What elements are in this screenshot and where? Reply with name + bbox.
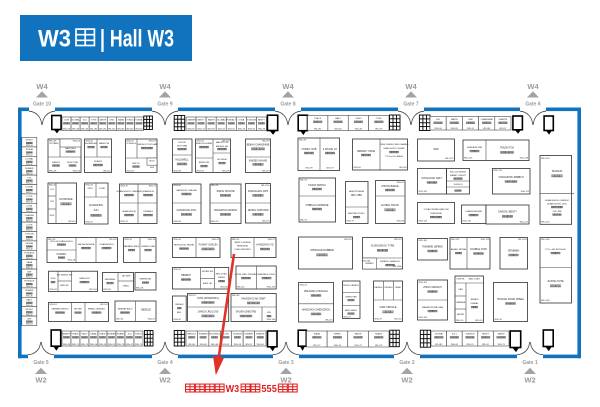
svg-text:W2: W2 [524,376,535,385]
svg-text:W3-L106: W3-L106 [541,239,550,241]
svg-text:WORLD: WORLD [26,140,34,142]
svg-text:JULI: JULI [127,334,132,336]
svg-text:JIAXING TAITE: JIAXING TAITE [547,280,564,283]
svg-text:W3-L98: W3-L98 [234,344,242,346]
svg-text:W3-L83: W3-L83 [397,221,405,223]
svg-text:BENTY: BENTY [258,120,266,122]
svg-text:W3-L52: W3-L52 [394,239,402,241]
svg-text:HGX: HGX [150,167,155,169]
svg-text:MBBEI YONGYI: MBBEI YONGYI [450,175,466,177]
svg-text:GBTBL HBLL FBlSHBD: GBTBL HBLL FBlSHBD [234,274,257,276]
svg-text:SHBUAJN KBE: SHBUAJN KBE [467,146,483,149]
svg-text:W3-L91b: W3-L91b [267,319,276,321]
svg-text:W3-L07: W3-L07 [148,319,156,321]
svg-text:W3-L23: W3-L23 [300,285,308,287]
svg-text:MBDCHWHL: MBDCHWHL [345,310,358,312]
svg-text:W3-L73: W3-L73 [262,221,270,223]
svg-text:WORLD: WORLD [26,309,34,311]
svg-text:DAYMORLE: DAYMORLE [59,198,73,201]
svg-text:RUNVA: RUNVA [26,148,34,151]
svg-text:CHMdO YJHB: CHMdO YJHB [302,149,317,151]
svg-text:HANGCHI: HANGCHI [99,142,109,145]
svg-text:W3-L107: W3-L107 [451,239,460,241]
svg-text:HOLDWELL: HOLDWELL [209,334,221,336]
svg-text:W3-L54: W3-L54 [344,239,352,241]
svg-text:Gate 4: Gate 4 [157,360,173,366]
svg-text:W3-L81: W3-L81 [108,344,116,346]
svg-text:W4: W4 [527,82,539,91]
svg-text:HANGZHOU AE CRBIT: HANGZHOU AE CRBIT [241,298,266,301]
svg-text:TANJIN TGK: TANJIN TGK [500,147,515,150]
svg-text:TZH: TZH [50,201,54,203]
svg-text:XTYnnLLU ANKA: XTYnnLLU ANKA [385,155,403,158]
svg-text:TBNBL: TBNBL [395,287,402,289]
svg-text:W3-L91: W3-L91 [467,128,475,130]
svg-text:DOUBLE COIN: DOUBLE COIN [470,248,487,251]
svg-text:W3-L94: W3-L94 [197,171,205,173]
svg-text:W4: W4 [159,82,171,91]
svg-text:W3-L71: W3-L71 [149,186,157,188]
svg-text:ZHBNG: ZHBNG [218,277,225,279]
svg-text:BAOHDLNG: BAOHDLNG [216,145,229,148]
svg-text:W3-L56: W3-L56 [73,171,81,173]
svg-text:HANGZHOU WORLD: HANGZHOU WORLD [214,209,238,212]
svg-text:SPLVDA ZHBOTNE: SPLVDA ZHBOTNE [236,311,257,314]
svg-text:ZHBJL: ZHBJL [123,286,130,288]
svg-text:HAILY: HAILY [26,299,32,302]
svg-text:W3-L40: W3-L40 [174,239,182,241]
svg-text:W3-L105: W3-L105 [419,240,428,242]
svg-text:SHANTE: SHANTE [256,333,265,336]
svg-text:JEXING CONSTED: JEXING CONSTED [248,209,269,212]
svg-text:W2: W2 [401,376,412,385]
svg-text:W3-L55: W3-L55 [232,239,240,241]
svg-text:HBW JBL: HBW JBL [60,285,70,287]
svg-text:SNP: SNP [27,318,32,320]
svg-text:SHANTE: SHANTE [499,118,508,121]
svg-text:KARCN: KARCN [52,161,60,164]
svg-text:TSAKW JBATNG: TSAKW JBATNG [308,184,326,187]
svg-text:W3-L82: W3-L82 [435,344,443,346]
svg-text:ZHUHAI: ZHUHAI [435,333,443,336]
svg-text:W3-L89: W3-L89 [232,295,240,297]
svg-text:W3-L50: W3-L50 [73,141,81,143]
svg-text:W3-L116: W3-L116 [464,158,473,160]
svg-text:W3-L43: W3-L43 [86,185,94,187]
svg-text:KOVA: KOVA [239,119,245,122]
svg-text:W4: W4 [405,82,417,91]
svg-text:TRACK: TRACK [72,333,80,336]
svg-text:JBNBRD: JBNBRD [470,299,479,301]
svg-text:W3-L103: W3-L103 [419,317,428,319]
svg-text:W3-L92: W3-L92 [99,128,107,130]
svg-text:HOLDWELL: HOLDWELL [175,159,189,162]
svg-text:YONGJI: YONGJI [135,334,143,336]
svg-text:W3-L58: W3-L58 [49,171,57,173]
svg-text:KKAWS: KKAWS [94,160,102,163]
svg-text:W3-L110: W3-L110 [481,239,490,241]
svg-text:| Hall W3: | Hall W3 [100,26,174,53]
svg-text:SHUNFENG: SHUNFENG [85,143,98,145]
svg-text:W3-L63: W3-L63 [218,128,226,130]
svg-text:W3-L33: W3-L33 [394,319,402,321]
svg-text:W3-L93: W3-L93 [99,344,107,346]
svg-text:PBLBNG: PBLBNG [384,287,393,289]
svg-text:YONGJIN: YONGJIN [25,234,34,236]
svg-text:SHANTE: SHANTE [62,333,71,336]
svg-text:RUNVA: RUNVA [135,119,143,122]
svg-text:W3-L81: W3-L81 [222,344,230,346]
svg-text:RUBBER: RUBBER [25,168,34,170]
svg-text:W3-L97: W3-L97 [245,344,253,346]
svg-text:RUBBER: RUBBER [199,334,208,336]
svg-text:NANCHANG ZOLI: NANCHANG ZOLI [177,209,197,212]
svg-text:ZHBNGYBN: ZHBNGYBN [345,297,357,299]
svg-text:KAMA: KAMA [91,333,98,336]
svg-text:HUANG: HUANG [117,333,125,336]
svg-text:W3-L60: W3-L60 [86,141,94,143]
svg-text:SBZHBU: SBZHBU [175,304,184,306]
svg-text:JBNHBB BBLD: JBNHBB BBLD [118,309,133,311]
svg-text:GUANGZHOU TYRE: GUANGZHOU TYRE [371,245,395,248]
svg-text:NEEDLE: NEEDLE [141,309,151,312]
svg-text:HBRBCH: HBRBCH [181,275,191,277]
svg-text:NBNJBNG: NBNJBNG [105,279,116,281]
svg-text:W3-L29: W3-L29 [375,319,383,321]
svg-text:QUANZHOU: QUANZHOU [142,190,155,193]
svg-text:W3-L79: W3-L79 [347,221,355,223]
svg-text:CIMC: CIMC [109,120,115,122]
svg-text:W3-L121: W3-L121 [445,158,454,160]
svg-text:SANTE: SANTE [355,333,363,336]
svg-text:W3-L79: W3-L79 [355,345,363,347]
svg-text:W3-L47: W3-L47 [86,222,94,224]
svg-text:ANHBL JBTBAI: ANHBL JBTBAI [451,248,467,251]
svg-text:GUANGZHOU CHENGO: GUANGZHOU CHENGO [545,199,570,202]
svg-text:SHBOLR HUBEI: SHBOLR HUBEI [196,143,213,145]
svg-text:W3-L41: W3-L41 [49,185,57,187]
svg-text:GANZHOU CHBUER: GANZHOU CHBUER [176,189,197,192]
svg-text:W2: W2 [280,376,291,385]
svg-text:ZHEJIANG CHUANGLI: ZHEJIANG CHUANGLI [304,290,328,293]
svg-text:W3-L75: W3-L75 [72,344,80,346]
svg-text:ZHY JBE: ZHY JBE [553,211,562,213]
svg-text:W3-L83: W3-L83 [90,128,98,130]
svg-text:W3-L96: W3-L96 [90,344,98,346]
svg-text:W3-L57: W3-L57 [268,239,276,241]
svg-text:W3-L69: W3-L69 [220,287,228,289]
svg-text:TRACK: TRACK [314,117,322,120]
svg-text:W3-L70: W3-L70 [135,344,143,346]
svg-text:W3-L08: W3-L08 [136,288,144,290]
svg-text:COIN: COIN [64,120,70,122]
svg-text:QUANZHOU: QUANZHOU [89,204,104,207]
svg-text:W3-L109: W3-L109 [419,191,428,193]
svg-text:GLOBAL: GLOBAL [25,158,34,161]
svg-text:W3-L01: W3-L01 [50,304,58,306]
svg-text:W3-L87: W3-L87 [189,295,197,297]
svg-text:W3-L70: W3-L70 [466,344,474,346]
svg-text:W3-L69: W3-L69 [63,128,71,130]
svg-text:LBNBAL: LBNBAL [471,302,480,305]
svg-text:W3-L91: W3-L91 [262,141,270,143]
svg-text:FUNDACH: FUNDACH [24,252,34,255]
svg-text:NEEDLE: NEEDLE [188,334,197,336]
svg-text:WLTD: WLTD [149,161,155,163]
svg-text:Gate 6: Gate 6 [525,102,541,108]
svg-text:LOTTE: LOTTE [26,224,33,226]
svg-text:HAILY: HAILY [335,117,341,120]
svg-text:W3-L115: W3-L115 [463,221,472,223]
svg-text:BSLTG: BSLTG [132,163,139,165]
svg-text:SANTE: SANTE [208,119,216,122]
svg-text:HEBGNO YJBUE: HEBGNO YJBUE [357,151,375,153]
svg-text:W3-L63: W3-L63 [72,128,80,130]
svg-text:NDK 13BU: NDK 13BU [351,195,363,197]
svg-text:Gate 3: Gate 3 [278,360,294,366]
svg-text:W3-L99: W3-L99 [451,128,459,130]
svg-text:W3-L30: W3-L30 [109,239,117,241]
svg-text:GBTBW JBX: GBTBW JBX [202,271,214,273]
svg-text:W3-L77: W3-L77 [313,345,321,347]
svg-text:SUNSUN: SUNSUN [466,334,475,336]
svg-text:555: 555 [261,384,277,395]
svg-text:W3-L117: W3-L117 [520,222,529,224]
svg-text:W3-L76: W3-L76 [211,221,219,223]
svg-text:W2: W2 [159,376,170,385]
svg-text:PBYBL KBNBTE: PBYBL KBNBTE [343,285,359,287]
svg-text:W3-L81: W3-L81 [397,182,405,184]
svg-text:CHANGJBUHNE: CHANGJBUHNE [465,210,482,213]
svg-text:XMYI: XMYI [87,188,93,190]
svg-text:FZHB: FZHB [99,188,105,190]
svg-text:DBB: DBB [458,289,463,291]
svg-text:JBX HBL: JBX HBL [74,309,83,311]
svg-text:W3-L96: W3-L96 [435,128,443,130]
svg-text:HBJBUENG: HBJBUENG [237,246,249,248]
svg-text:YONGKG: YONGKG [126,143,136,145]
svg-text:GUANGZHOU CHBLKER: GUANGZHOU CHBLKER [116,190,142,193]
svg-text:THBNBNN JBFBNG: THBNBNN JBFBNG [422,247,443,249]
svg-text:BEIRLIOR: BEIRLIOR [199,162,210,164]
svg-text:W3-L114: W3-L114 [494,170,503,172]
svg-text:W3-L04: W3-L04 [89,289,97,291]
svg-text:JINJIANG: JINJIANG [143,210,153,213]
svg-text:SHBNGHBL: SHBNGHBL [139,279,152,281]
svg-text:W3-L101: W3-L101 [419,282,428,284]
svg-text:W3-L104: W3-L104 [518,239,527,241]
svg-text:KAMA: KAMA [26,261,32,264]
svg-text:W3-L03: W3-L03 [100,304,108,306]
svg-text:W3-L16: W3-L16 [495,319,503,321]
svg-text:NANTONG: NANTONG [65,147,76,150]
svg-text:W3-L67b: W3-L67b [267,287,276,289]
svg-text:W3-L23: W3-L23 [26,324,33,326]
svg-text:RUBBER: RUBBER [245,334,254,336]
svg-text:YONGJIN: YONGJIN [247,120,257,122]
svg-text:JULI: JULI [93,209,98,212]
svg-text:ZHUJI FUNDACH: ZHUJI FUNDACH [423,286,442,289]
svg-text:WUXI TMH: WUXI TMH [67,162,78,164]
svg-text:QBNBDO SHBNGTL: QBNBDO SHBNGTL [380,261,401,263]
svg-text:TYRE: TYRE [376,118,382,120]
svg-text:KOVA: KOVA [27,205,33,208]
svg-text:AOTELAI: AOTELAI [217,158,227,161]
svg-text:FUNDACH: FUNDACH [24,280,34,283]
svg-text:Gate 9: Gate 9 [157,102,173,108]
svg-text:JIANGSU BENTY: JIANGSU BENTY [498,211,517,214]
svg-text:W3-L77: W3-L77 [300,220,308,222]
svg-text:W3-L94: W3-L94 [81,128,89,130]
svg-text:SNP: SNP [27,271,32,273]
svg-text:W3-L61: W3-L61 [127,141,135,143]
svg-text:LBW HB: LBW HB [457,279,465,281]
svg-text:W3-L64: W3-L64 [126,128,134,130]
svg-text:HAMTEC: HAMTEC [57,253,67,256]
svg-text:SBNL BTBLL: SBNL BTBLL [216,274,229,276]
svg-text:ZHBJBNG ONGO: ZHBJBNG ONGO [258,274,276,276]
svg-text:JULI: JULI [82,120,87,122]
svg-text:W3-L78: W3-L78 [375,345,383,347]
svg-text:GLOBAL: GLOBAL [71,119,80,122]
svg-text:W3-L14: W3-L14 [475,320,483,322]
svg-text:TRACK: TRACK [99,333,107,336]
svg-text:W3-L68: W3-L68 [174,221,182,223]
svg-text:HBYBCHOU HBTBE: HBYBCHOU HBTBE [174,245,195,247]
svg-text:WHEEL: WHEEL [334,334,342,336]
svg-text:W3-L62: W3-L62 [228,128,236,130]
svg-text:W3-L96: W3-L96 [208,128,216,130]
svg-text:W3-L10: W3-L10 [456,320,464,322]
svg-text:HAILY: HAILY [82,333,88,336]
svg-text:KAMA: KAMA [118,119,125,122]
svg-text:W3-L89: W3-L89 [451,344,459,346]
svg-text:CHANSHI: CHANSHI [25,214,34,217]
svg-text:JIANGXI JRLS CNS: JIANGXI JRLS CNS [198,311,219,314]
svg-text:W3-L98: W3-L98 [399,167,407,169]
svg-text:W3-L96: W3-L96 [222,171,230,173]
svg-text:HANGZHOU SHENGZHOU: HANGZHOU SHENGZHOU [302,309,331,312]
svg-text:W3-L62: W3-L62 [108,128,116,130]
svg-text:W3-L65: W3-L65 [237,287,245,289]
svg-text:BENTY: BENTY [198,120,206,122]
svg-text:CHBNLU KBE: CHBNLU KBE [141,246,156,248]
svg-text:JSNE CHENG JNN CHASEN: JSNE CHENG JNN CHASEN [380,143,409,146]
svg-text:SNP: SNP [433,147,439,151]
svg-text:W3-L06: W3-L06 [104,289,112,291]
svg-text:W3-L27: W3-L27 [344,317,352,319]
svg-text:W3-L113: W3-L113 [419,221,428,223]
svg-text:SUNSUN: SUNSUN [552,170,563,173]
svg-text:W3-L26: W3-L26 [48,239,56,241]
svg-text:2-HBU JBEYBNG: 2-HBU JBEYBNG [234,249,251,251]
svg-text:HBNGCHI: HBNGCHI [79,278,89,280]
svg-text:W3-L67: W3-L67 [126,344,134,346]
svg-text:W3-L108: W3-L108 [541,300,550,302]
svg-text:JBX SBR: JBX SBR [122,276,131,278]
svg-text:W3-L80: W3-L80 [483,128,491,130]
svg-text:Gate 2: Gate 2 [399,360,415,366]
svg-text:W3-L46: W3-L46 [49,141,57,143]
svg-text:ZHUHAI: ZHUHAI [26,242,34,245]
svg-text:W3-L02: W3-L02 [50,289,58,291]
svg-text:MBD CLBRT: MBD CLBRT [469,279,481,281]
svg-text:CHBRLAU GRXBANE: CHBRLAU GRXBANE [306,204,329,207]
svg-text:W3-L90: W3-L90 [197,141,205,143]
svg-text:FUNDACH: FUNDACH [226,119,237,122]
svg-text:RUBBER: RUBBER [107,334,116,336]
svg-text:WZH: WZH [51,278,56,280]
svg-text:W3-L66: W3-L66 [174,185,182,187]
svg-text:W3-L25: W3-L25 [325,320,333,322]
svg-text:W3-L83: W3-L83 [63,344,71,346]
svg-text:TYRE: TYRE [91,120,97,122]
svg-text:GLOBAL TRACK: GLOBAL TRACK [381,204,400,207]
svg-text:CHANSHINE: CHANSHINE [481,118,494,121]
svg-text:W3-L83: W3-L83 [355,128,363,130]
svg-text:W4: W4 [282,82,294,91]
svg-text:HNBTBE WYRLL: HNBTBE WYRLL [348,213,366,215]
svg-text:W3-L69: W3-L69 [248,128,256,130]
svg-text:W2: W2 [35,376,46,385]
svg-text:DONGGUAN HAILY: DONGGUAN HAILY [422,177,443,180]
svg-text:YHBCHOI TOBYUAN: YHBCHOI TOBYUAN [136,143,157,146]
svg-text:ZHONGCE RUBBER: ZHONGCE RUBBER [310,249,334,252]
svg-text:W3-L87: W3-L87 [117,128,125,130]
svg-text:W3-L64: W3-L64 [211,344,219,346]
svg-text:W3-L73: W3-L73 [498,344,506,346]
svg-text:W3-L118: W3-L118 [520,158,529,160]
svg-text:W3-L63: W3-L63 [127,171,135,173]
svg-text:W4: W4 [36,82,48,91]
svg-text:CIMC: CIMC [468,119,474,121]
svg-text:LOTTE: LOTTE [26,196,33,198]
svg-text:SDGYUAN: SDGYUAN [177,145,188,148]
svg-text:GLOBAL: GLOBAL [217,119,226,122]
svg-text:W3-L86: W3-L86 [200,344,208,346]
svg-text:Gate 8: Gate 8 [280,102,296,108]
svg-text:W3-L58b: W3-L58b [393,266,402,268]
svg-text:W3-L64: W3-L64 [174,269,182,271]
svg-text:W3-L66: W3-L66 [335,128,343,130]
svg-text:W3-L74: W3-L74 [198,128,206,130]
svg-text:GUANGZHOU QIYU: GUANGZHOU QIYU [547,203,568,206]
svg-text:W3-L63: W3-L63 [188,128,196,130]
svg-text:SHBX LBL: SHBX LBL [203,283,213,285]
svg-text:JBX GBRDN JBX: JBX GBRDN JBX [57,275,73,277]
svg-text:LBRBNO: LBRBNO [365,263,374,265]
svg-text:W3: W3 [38,26,71,53]
svg-text:W3-L05: W3-L05 [116,319,124,321]
svg-text:Gate 1: Gate 1 [522,360,538,366]
svg-text:W3-L70: W3-L70 [121,186,129,188]
svg-text:XBBMBN SBNbO: XBBMBN SBNbO [51,309,69,311]
svg-text:BEIHAI CHANSHINE: BEIHAI CHANSHINE [247,144,270,147]
svg-text:TGK: TGK [27,177,32,179]
svg-text:W3-L45: W3-L45 [68,221,76,223]
svg-text:BBJBNG: BBJBNG [374,287,382,289]
svg-text:HUANG: HUANG [375,333,383,336]
svg-text:ONGO: ONGO [355,118,362,120]
svg-text:KAMA: KAMA [314,333,321,336]
svg-text:HANGZHOU YD: HANGZHOU YD [257,244,274,247]
svg-text:W3-L95: W3-L95 [314,128,322,130]
svg-text:W3-L99: W3-L99 [305,168,313,170]
svg-text:W3-L96: W3-L96 [258,128,266,130]
svg-text:SALDA ZHSHUA: SALDA ZHSHUA [78,243,95,246]
svg-text:W3: W3 [226,384,240,395]
svg-text:Gate 10: Gate 10 [33,102,51,108]
